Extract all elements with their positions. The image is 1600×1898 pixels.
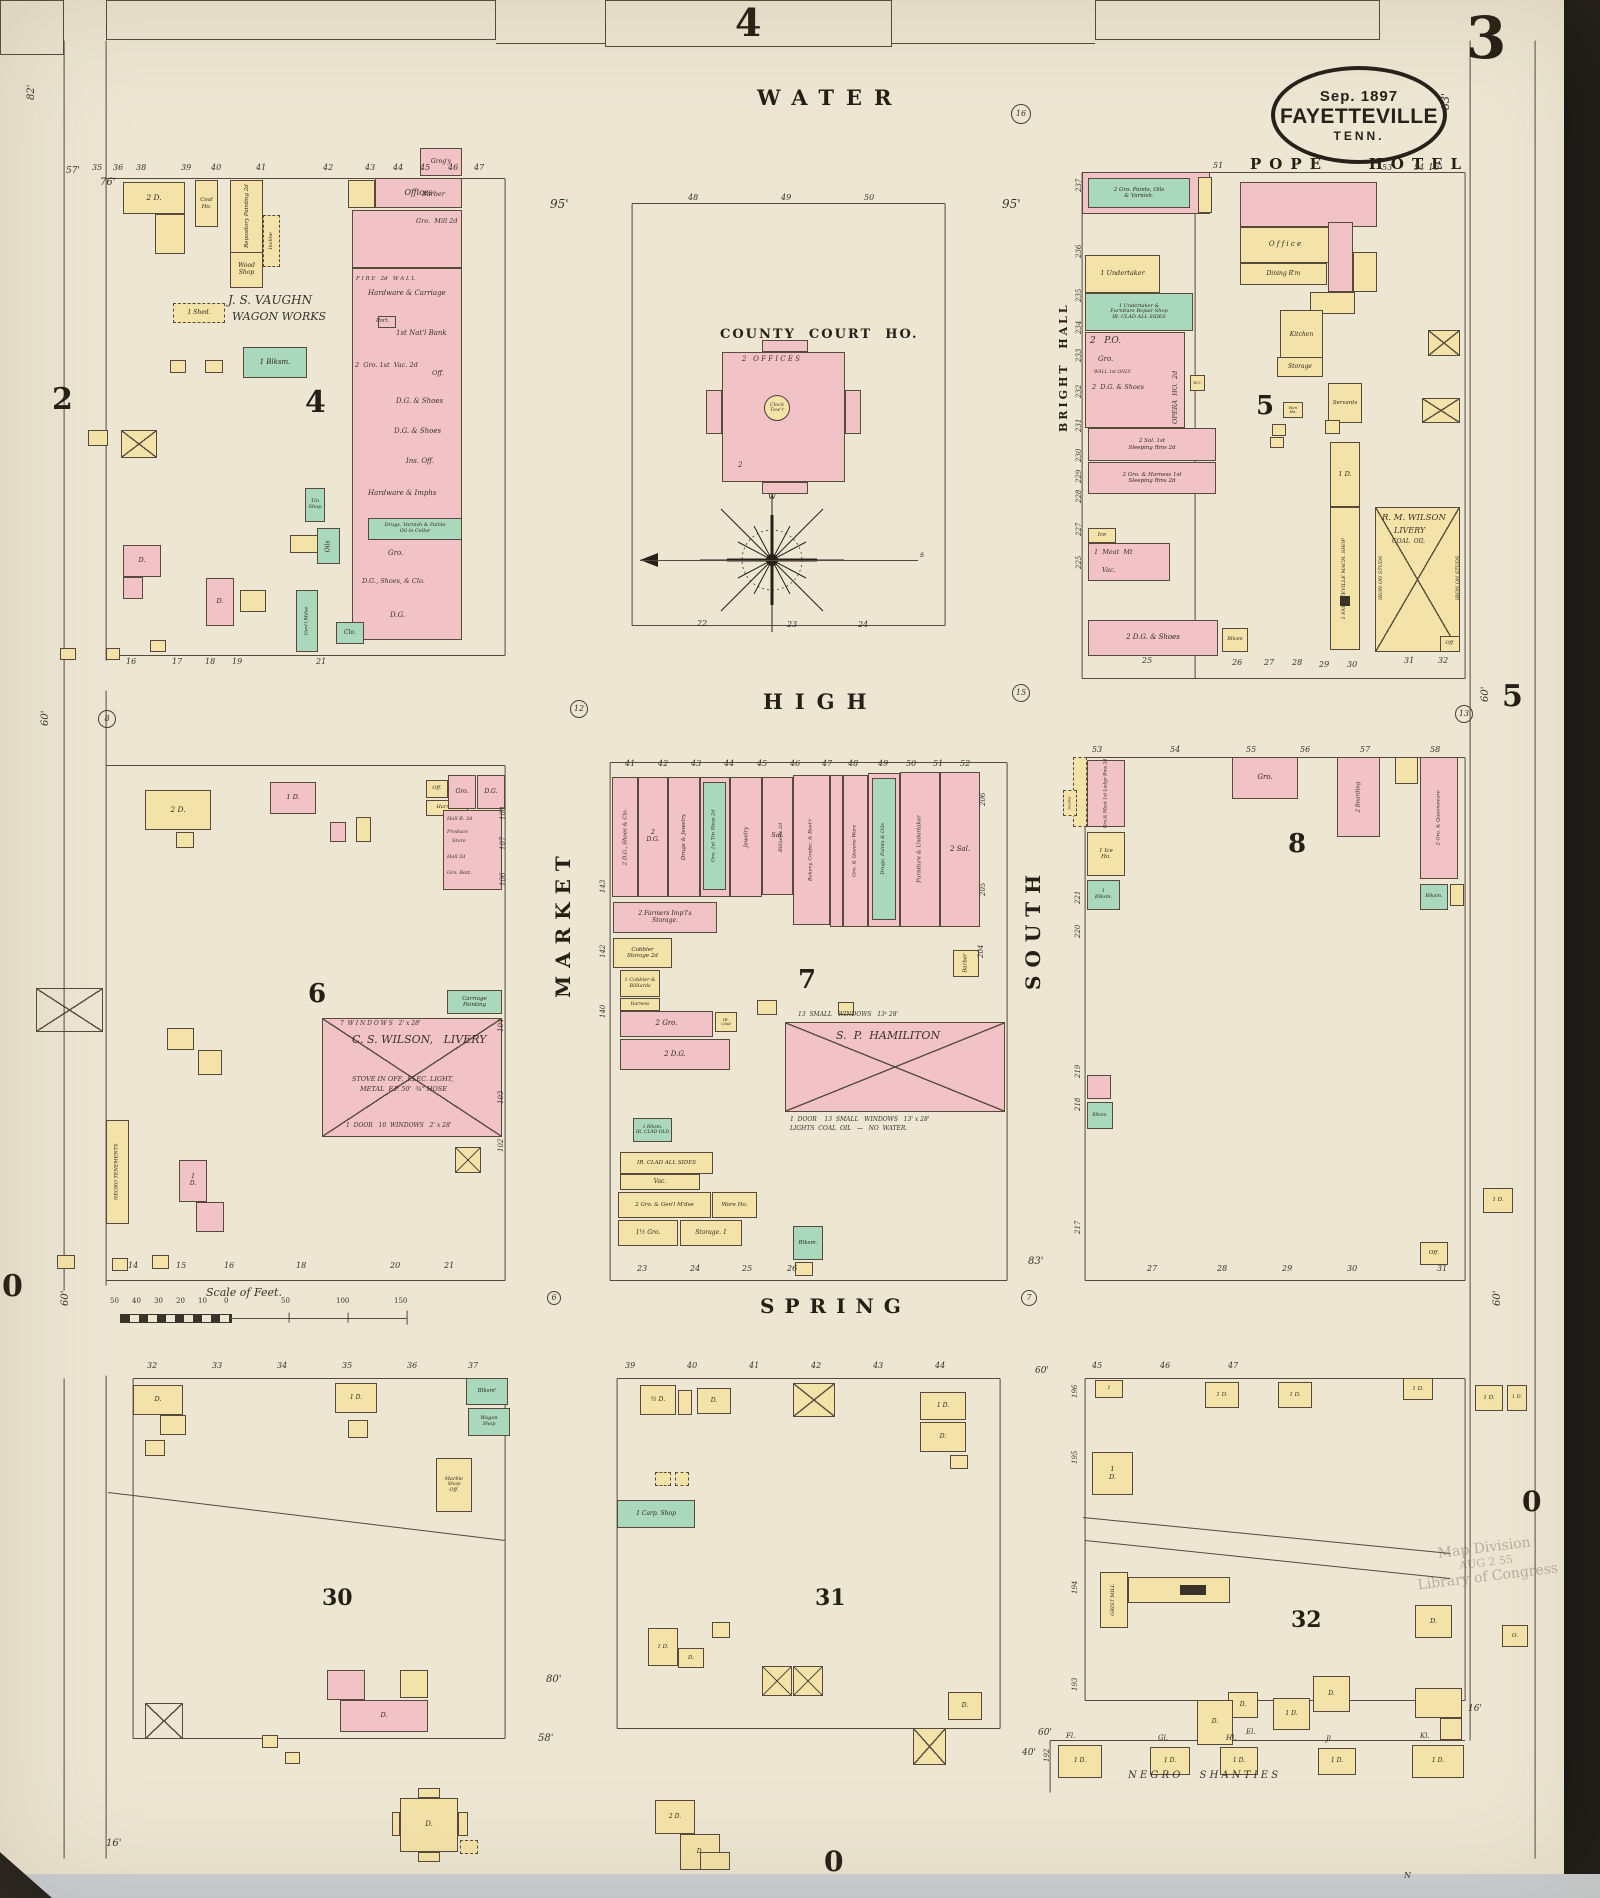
- map-label: 60': [1492, 1291, 1503, 1306]
- building: Repository Painting 2d: [230, 180, 263, 253]
- building-label: Carriage Painting: [462, 996, 487, 1008]
- building-label: 2 Sal.: [950, 846, 970, 854]
- building: [60, 648, 76, 660]
- building: Ice: [1088, 528, 1116, 543]
- map-label: 48: [688, 194, 698, 203]
- map-label: IRON ON STUDS: [1456, 556, 1462, 600]
- boundary-line: [1084, 758, 1085, 1281]
- map-label: Gl.: [1158, 1735, 1168, 1743]
- building: [1270, 437, 1284, 448]
- building: 2 Gro. & Queensware: [1420, 757, 1458, 879]
- building: 1 Blksm. IR. CLAD OLD: [633, 1118, 672, 1142]
- map-label: 193: [1072, 1678, 1080, 1691]
- building-label: D.: [138, 557, 145, 564]
- building-label: 2 D.G., Shoes & Clo.: [622, 809, 628, 866]
- map-label: 82': [26, 85, 37, 100]
- building: [913, 1728, 946, 1765]
- map-label: D.G. & Shoes: [396, 398, 443, 406]
- building: 2 Sal. 1st Sleeping Rms 2d: [1088, 428, 1216, 461]
- building: 1 Blksm.: [1087, 880, 1120, 910]
- map-marker: 13: [1455, 705, 1473, 723]
- map-date: Sep. 1897: [1320, 88, 1398, 105]
- map-label: METAL F.P. 50' ¾" HOSE: [360, 1086, 447, 1093]
- map-label: 205: [980, 883, 988, 896]
- clock-tower: Clock Tow'r: [764, 395, 790, 421]
- map-label: Gro. Mill 2d: [416, 218, 458, 225]
- map-label: 29: [1282, 1265, 1292, 1274]
- building: Furniture & Undertaker: [900, 772, 940, 927]
- building-label: Barber: [963, 954, 969, 973]
- map-label: 43: [691, 760, 701, 769]
- map-label: Off.: [432, 370, 444, 377]
- map-label: 17: [172, 658, 182, 667]
- building: [418, 1788, 440, 1798]
- map-label: 234: [1076, 321, 1084, 334]
- grist-mill: GRIST MILL: [1100, 1572, 1128, 1628]
- building: 1 D.: [179, 1160, 207, 1202]
- map-label: 55: [1246, 746, 1256, 755]
- building: 1 D.: [1278, 1382, 1312, 1408]
- map-city: FAYETTEVILLE: [1280, 105, 1438, 129]
- building: IR. CLAD ALL SIDES: [620, 1152, 713, 1174]
- map-label: 21: [316, 658, 326, 667]
- boundary-line: [609, 763, 610, 1281]
- map-label: 44: [935, 1362, 945, 1371]
- building: [1328, 222, 1353, 292]
- map-label: 16: [126, 658, 136, 667]
- building: Kitchen: [1280, 310, 1323, 360]
- building: Drugs, Varnish & Paints Oil in Cellar: [368, 518, 462, 540]
- building: [793, 1383, 835, 1417]
- map-label: 42: [811, 1362, 821, 1371]
- building: [170, 360, 186, 373]
- building: 2 D.G. & Shoes: [1088, 620, 1218, 656]
- building: 1 Shed.: [173, 303, 225, 323]
- building: [712, 1622, 730, 1638]
- building-label: Gro.: [1257, 774, 1272, 782]
- building: [176, 832, 194, 848]
- building: O.: [1502, 1625, 1528, 1647]
- building: Gro. 1st Tin Shop 2d: [703, 782, 726, 890]
- map-label: 60': [1480, 687, 1491, 702]
- map-label: 194: [1072, 1581, 1080, 1594]
- building: Blksm.: [1420, 884, 1448, 910]
- map-label: 20: [176, 1298, 185, 1306]
- building: 2 Sal.: [940, 772, 980, 927]
- map-label: 56: [1300, 746, 1310, 755]
- building: 2 Gro. & Gen'l M'dse: [618, 1192, 711, 1218]
- map-label: Hall B. 2d: [447, 817, 472, 823]
- building-label: 1 D.: [1432, 1758, 1444, 1765]
- building: [655, 1472, 671, 1486]
- map-label: 23: [787, 621, 797, 630]
- map-label: Store: [452, 839, 466, 845]
- map-label: 235: [1076, 289, 1084, 302]
- building-label: Furniture & Undertaker: [917, 816, 923, 884]
- map-label: 41: [749, 1362, 759, 1371]
- map-label: 32: [1438, 657, 1448, 666]
- building-label: Wagon Shop: [480, 1416, 497, 1427]
- building-label: D.: [940, 1434, 947, 1441]
- building: [1128, 1577, 1230, 1603]
- map-label: Vac.: [1102, 567, 1116, 574]
- map-state: TENN.: [1334, 129, 1385, 143]
- building: 2 D.: [123, 182, 185, 214]
- map-label: 49: [878, 760, 888, 769]
- building: 1 D.: [1507, 1385, 1527, 1411]
- boundary-line: [616, 1379, 617, 1729]
- building: 1 D.: [270, 782, 316, 814]
- building: 1 D.: [920, 1392, 966, 1420]
- map-label: 31: [1404, 657, 1414, 666]
- map-marker: 12: [570, 700, 588, 718]
- map-label: F I R E 2d W A L L: [356, 276, 415, 282]
- building-label: 1 Shed.: [188, 310, 211, 317]
- map-label: 26: [787, 1265, 797, 1274]
- building: Drugs, Paints & Oils: [872, 778, 896, 920]
- map-label: 27: [1147, 1265, 1157, 1274]
- building: [950, 1455, 968, 1469]
- map-label: OPERA HO. 2d: [1172, 371, 1179, 424]
- building: [757, 1000, 777, 1015]
- building: Offices: [375, 178, 462, 208]
- building: [1428, 330, 1460, 356]
- map-label: 30: [1347, 661, 1357, 670]
- building-label: D.: [216, 598, 223, 605]
- map-label: 229: [1076, 470, 1084, 483]
- map-label: 1 Meat Mt: [1094, 549, 1133, 556]
- map-label: 10: [198, 1298, 207, 1306]
- building: 1 Cobbler & Billiards: [620, 970, 660, 997]
- building: [327, 1670, 365, 1700]
- map-label: 47: [474, 164, 484, 173]
- map-label: WAGON WORKS: [232, 311, 326, 323]
- building: [1180, 1585, 1206, 1595]
- building-label: 1 Blksm. IR. CLAD OLD: [636, 1125, 669, 1135]
- building: D.: [340, 1700, 428, 1732]
- map-label: 46: [448, 164, 458, 173]
- building-label: W.C.: [1193, 381, 1202, 385]
- map-label: 43: [873, 1362, 883, 1371]
- map-label: 45: [1092, 1362, 1102, 1371]
- map-label: 192: [1044, 1749, 1052, 1762]
- map-label: w: [768, 492, 776, 502]
- building-label: GRIST MILL: [1111, 1584, 1117, 1616]
- building: [700, 1852, 730, 1870]
- building: [240, 590, 266, 612]
- building-label: 2 D.G.: [647, 830, 660, 843]
- boundary-line: [1464, 173, 1465, 679]
- map-label: 2 Gro. 1st Vac. 2d: [355, 362, 418, 369]
- building: 2 D.G., Shoes & Clo.: [612, 777, 638, 897]
- map-label: 225: [1076, 556, 1084, 569]
- building: Blksm': [466, 1378, 508, 1405]
- building-label: 1 D.: [1233, 1758, 1245, 1765]
- map-label: 150: [394, 1298, 407, 1306]
- map-label: 228: [1076, 490, 1084, 503]
- building: [1395, 757, 1418, 784]
- building: 2 Gro. Paints, Oils & Varnish.: [1088, 178, 1190, 208]
- building-label: D.: [711, 1398, 718, 1405]
- map-label: 45: [757, 760, 767, 769]
- map-label: 95': [550, 198, 569, 211]
- building-label: 2 Gro. & Gen'l M'dse: [635, 1202, 694, 1208]
- building-label: 1 D.: [1074, 1758, 1086, 1765]
- building: 2 D.: [655, 1800, 695, 1834]
- building: [1340, 596, 1350, 606]
- building-label: Scales: [1068, 796, 1072, 809]
- building: Marble Shop Off.: [436, 1458, 472, 1512]
- building: [795, 1262, 813, 1276]
- boundary-line: [106, 1280, 505, 1281]
- building-label: O.: [1512, 1633, 1518, 1639]
- building-label: Blksm.: [1425, 894, 1442, 900]
- map-label: Fl.: [1066, 1733, 1075, 1741]
- building-label: 1 D.: [286, 794, 299, 801]
- building-label: 1 D.: [1109, 1466, 1116, 1481]
- building: Wagon Shop: [468, 1408, 510, 1436]
- building-label: Repository Painting 2d: [243, 185, 249, 249]
- map-label: 0: [824, 1846, 843, 1877]
- map-label: 28: [1292, 659, 1302, 668]
- building-label: 1 D.: [1512, 1395, 1522, 1401]
- map-label: COAL OIL: [1392, 539, 1425, 546]
- map-label: 2: [738, 462, 742, 470]
- building: [845, 390, 861, 434]
- map-label: 20: [390, 1262, 400, 1271]
- boundary-line: [105, 1376, 106, 1859]
- building-label: D.: [1212, 1719, 1219, 1726]
- map-label: 37: [468, 1362, 478, 1371]
- boundary-line: [1006, 763, 1007, 1281]
- pope-hotel: [1240, 182, 1377, 227]
- block-number-2: 2: [52, 383, 73, 417]
- building-label: 1 FAYETTEVILLE MACH. SHOP: [1342, 538, 1348, 619]
- map-label: 33: [212, 1362, 222, 1371]
- building-label: 1 D.: [190, 1174, 197, 1187]
- building: 1½ Gro.: [618, 1220, 678, 1246]
- building-label: NEGRO TENEMENTS: [115, 1144, 121, 1200]
- boundary-line: [999, 1379, 1000, 1729]
- map-label: N E G R O S H A N T I E S: [1128, 1770, 1278, 1781]
- building: NEGRO TENEMENTS: [106, 1120, 129, 1224]
- map-label: 1 DOOR 13 SMALL WINDOWS 13' x 28': [790, 1117, 929, 1124]
- map-label: 43: [365, 164, 375, 173]
- map-label: 36: [113, 164, 123, 173]
- map-label: 40: [687, 1362, 697, 1371]
- boundary-line: [1050, 1740, 1465, 1741]
- building: [290, 535, 318, 553]
- building: 1 D.: [1092, 1452, 1133, 1495]
- building-label: Blksm.: [799, 1240, 818, 1246]
- building: Gen'l Mdse: [296, 590, 318, 652]
- building: 2 D.G.: [620, 1039, 730, 1070]
- boundary-line: [640, 560, 918, 561]
- building: [458, 1812, 468, 1836]
- boundary-line: [631, 204, 632, 626]
- building: [1325, 420, 1340, 434]
- map-label: 30: [1347, 1265, 1357, 1274]
- boundary-line: [133, 1738, 505, 1739]
- boundary-line: [105, 41, 106, 661]
- building: Storage. 1: [680, 1220, 742, 1246]
- block-number-30: 30: [322, 1586, 353, 1611]
- boundary-line: [610, 762, 1007, 763]
- building-label: 1 D.: [1289, 1392, 1300, 1398]
- map-label: 24: [858, 621, 868, 630]
- building: Servants: [1328, 383, 1362, 423]
- boundary-line: [132, 1379, 133, 1739]
- building-label: 1: [1107, 1386, 1110, 1392]
- scan-edge-bottom: [0, 1874, 1600, 1898]
- building-label: 2 D.: [669, 1814, 681, 1821]
- building-label: O f f i c e: [1269, 241, 1301, 249]
- building-label: Storage: [1288, 364, 1312, 371]
- street-spring: SPRING: [760, 1295, 911, 1317]
- building: Off.: [1420, 1242, 1448, 1265]
- scan-edge-right: [1564, 0, 1600, 1898]
- block-number-4: 4: [305, 386, 326, 420]
- boundary-line: [632, 203, 945, 204]
- map-label: 50: [864, 194, 874, 203]
- map-label: 57: [1360, 746, 1370, 755]
- map-label: 230: [1076, 449, 1084, 462]
- building: [1272, 424, 1286, 436]
- building: Gro. & Queens Ware: [843, 775, 868, 927]
- scale-bar: [120, 1314, 232, 1323]
- building-label: Gro. & Queens Ware: [853, 825, 859, 877]
- building: [123, 577, 143, 599]
- building: 2 Farmers Imp'l's Storage.: [613, 902, 717, 933]
- map-label: 47: [1228, 1362, 1238, 1371]
- block-number-6: 6: [308, 980, 326, 1009]
- map-label: 237: [1076, 179, 1084, 192]
- map-label: 83': [1440, 93, 1452, 110]
- map-label: 16': [1428, 163, 1442, 173]
- building: [1198, 177, 1212, 213]
- building: 2 Gro.: [620, 1011, 713, 1037]
- building: [155, 214, 185, 254]
- block-number-31: 31: [815, 1586, 846, 1611]
- map-label: LIVERY: [1394, 527, 1425, 536]
- map-label: 220: [1075, 925, 1083, 938]
- map-label: 218: [1075, 1098, 1083, 1111]
- building: D.: [1415, 1605, 1452, 1638]
- map-label: 58: [1430, 746, 1440, 755]
- map-label: 232: [1076, 385, 1084, 398]
- building-label: 1 D.: [1164, 1758, 1176, 1765]
- building: [121, 430, 157, 458]
- map-label: 26: [1232, 659, 1242, 668]
- building: D.: [123, 545, 161, 577]
- building-label: 2 Gro.: [656, 1020, 678, 1028]
- map-label: 42: [323, 164, 333, 173]
- map-label: 54: [1170, 746, 1180, 755]
- block-number-7: 7: [798, 966, 816, 995]
- building-label: Clo.: [344, 630, 356, 637]
- building: [356, 817, 371, 842]
- map-marker: 6: [547, 1291, 561, 1305]
- building-label: Gro. 1st Tin Shop 2d: [712, 810, 718, 862]
- building-label: IR. Clad: [721, 1018, 730, 1027]
- map-label: 1 DOOR 10 WINDOWS 2' x 28': [346, 1123, 451, 1130]
- map-label: 16': [106, 1838, 121, 1849]
- building: 1 D.: [1412, 1745, 1464, 1778]
- street-water: WATER: [757, 86, 903, 110]
- map-label: 206: [980, 793, 988, 806]
- margin-box: [0, 0, 64, 55]
- building: 1 D.: [1318, 1748, 1356, 1775]
- boundary-line: [106, 765, 505, 766]
- map-label: 2 O F F I C E S: [742, 356, 800, 364]
- building: 1 Undertaker: [1085, 255, 1160, 293]
- building: [1415, 1688, 1462, 1718]
- building-label: Cobbler Storage 2d: [627, 947, 658, 959]
- map-label: 221: [1075, 891, 1083, 904]
- map-label: N: [1404, 1872, 1411, 1881]
- building: [88, 430, 108, 446]
- map-label: Barber: [422, 191, 445, 198]
- map-label: 80': [546, 1674, 561, 1685]
- boundary-line: [1083, 1517, 1450, 1554]
- map-label: 35: [342, 1362, 352, 1371]
- building-label: D.G.: [485, 789, 498, 796]
- map-label: 25: [742, 1265, 752, 1274]
- building-label: IR. CLAD ALL SIDES: [637, 1160, 696, 1166]
- map-label: 54: [1414, 164, 1424, 173]
- building: [152, 1255, 169, 1269]
- building-label: Ware Ho.: [722, 1202, 748, 1208]
- map-label: 51: [1213, 162, 1223, 171]
- building: [1085, 332, 1185, 428]
- map-label: D.G. & Shoes: [394, 428, 441, 436]
- building: [262, 1735, 278, 1748]
- map-label: Gro.: [1098, 356, 1113, 364]
- building: Coal Ho.: [195, 180, 218, 227]
- building: Bakery, Confec. & Rest'r: [793, 775, 830, 925]
- building: Oils: [317, 528, 340, 564]
- building: [36, 988, 103, 1032]
- map-label: 140: [600, 1005, 608, 1018]
- map-label: Hall 2d: [447, 855, 466, 861]
- map-label: 23: [637, 1265, 647, 1274]
- building: [1450, 884, 1464, 906]
- map-label: 102: [498, 1139, 506, 1152]
- building-label: D.: [1240, 1702, 1247, 1709]
- building-label: Storage. 1: [695, 1230, 727, 1237]
- map-label: 60': [1038, 1728, 1052, 1738]
- street-south: SOUTH: [1022, 867, 1044, 990]
- map-label: 195: [1072, 1451, 1080, 1464]
- building-label: 1 D.: [657, 1644, 668, 1650]
- sp-hamilton-label: S. P. HAMILITON: [836, 1030, 940, 1042]
- map-label: Produce: [447, 830, 468, 836]
- building: Hen Ho.: [1283, 402, 1303, 418]
- building: O f f i c e: [1240, 227, 1330, 263]
- map-label: 53: [1382, 164, 1392, 173]
- building-label: 1 Carp. Shop: [636, 1511, 676, 1518]
- building-label: Marble Shop Off.: [445, 1477, 463, 1494]
- building-label: 2 Farmers Imp'l's Storage.: [638, 911, 691, 924]
- building-label: Servants: [1333, 400, 1358, 406]
- building-label: 2 D.: [146, 194, 161, 202]
- building-label: D.: [688, 1655, 694, 1661]
- map-label: 16: [224, 1262, 234, 1271]
- building: 1 Blksm.: [243, 347, 307, 378]
- building: Harness: [620, 998, 660, 1011]
- map-label: 34: [277, 1362, 287, 1371]
- building: 2 D.: [145, 790, 211, 830]
